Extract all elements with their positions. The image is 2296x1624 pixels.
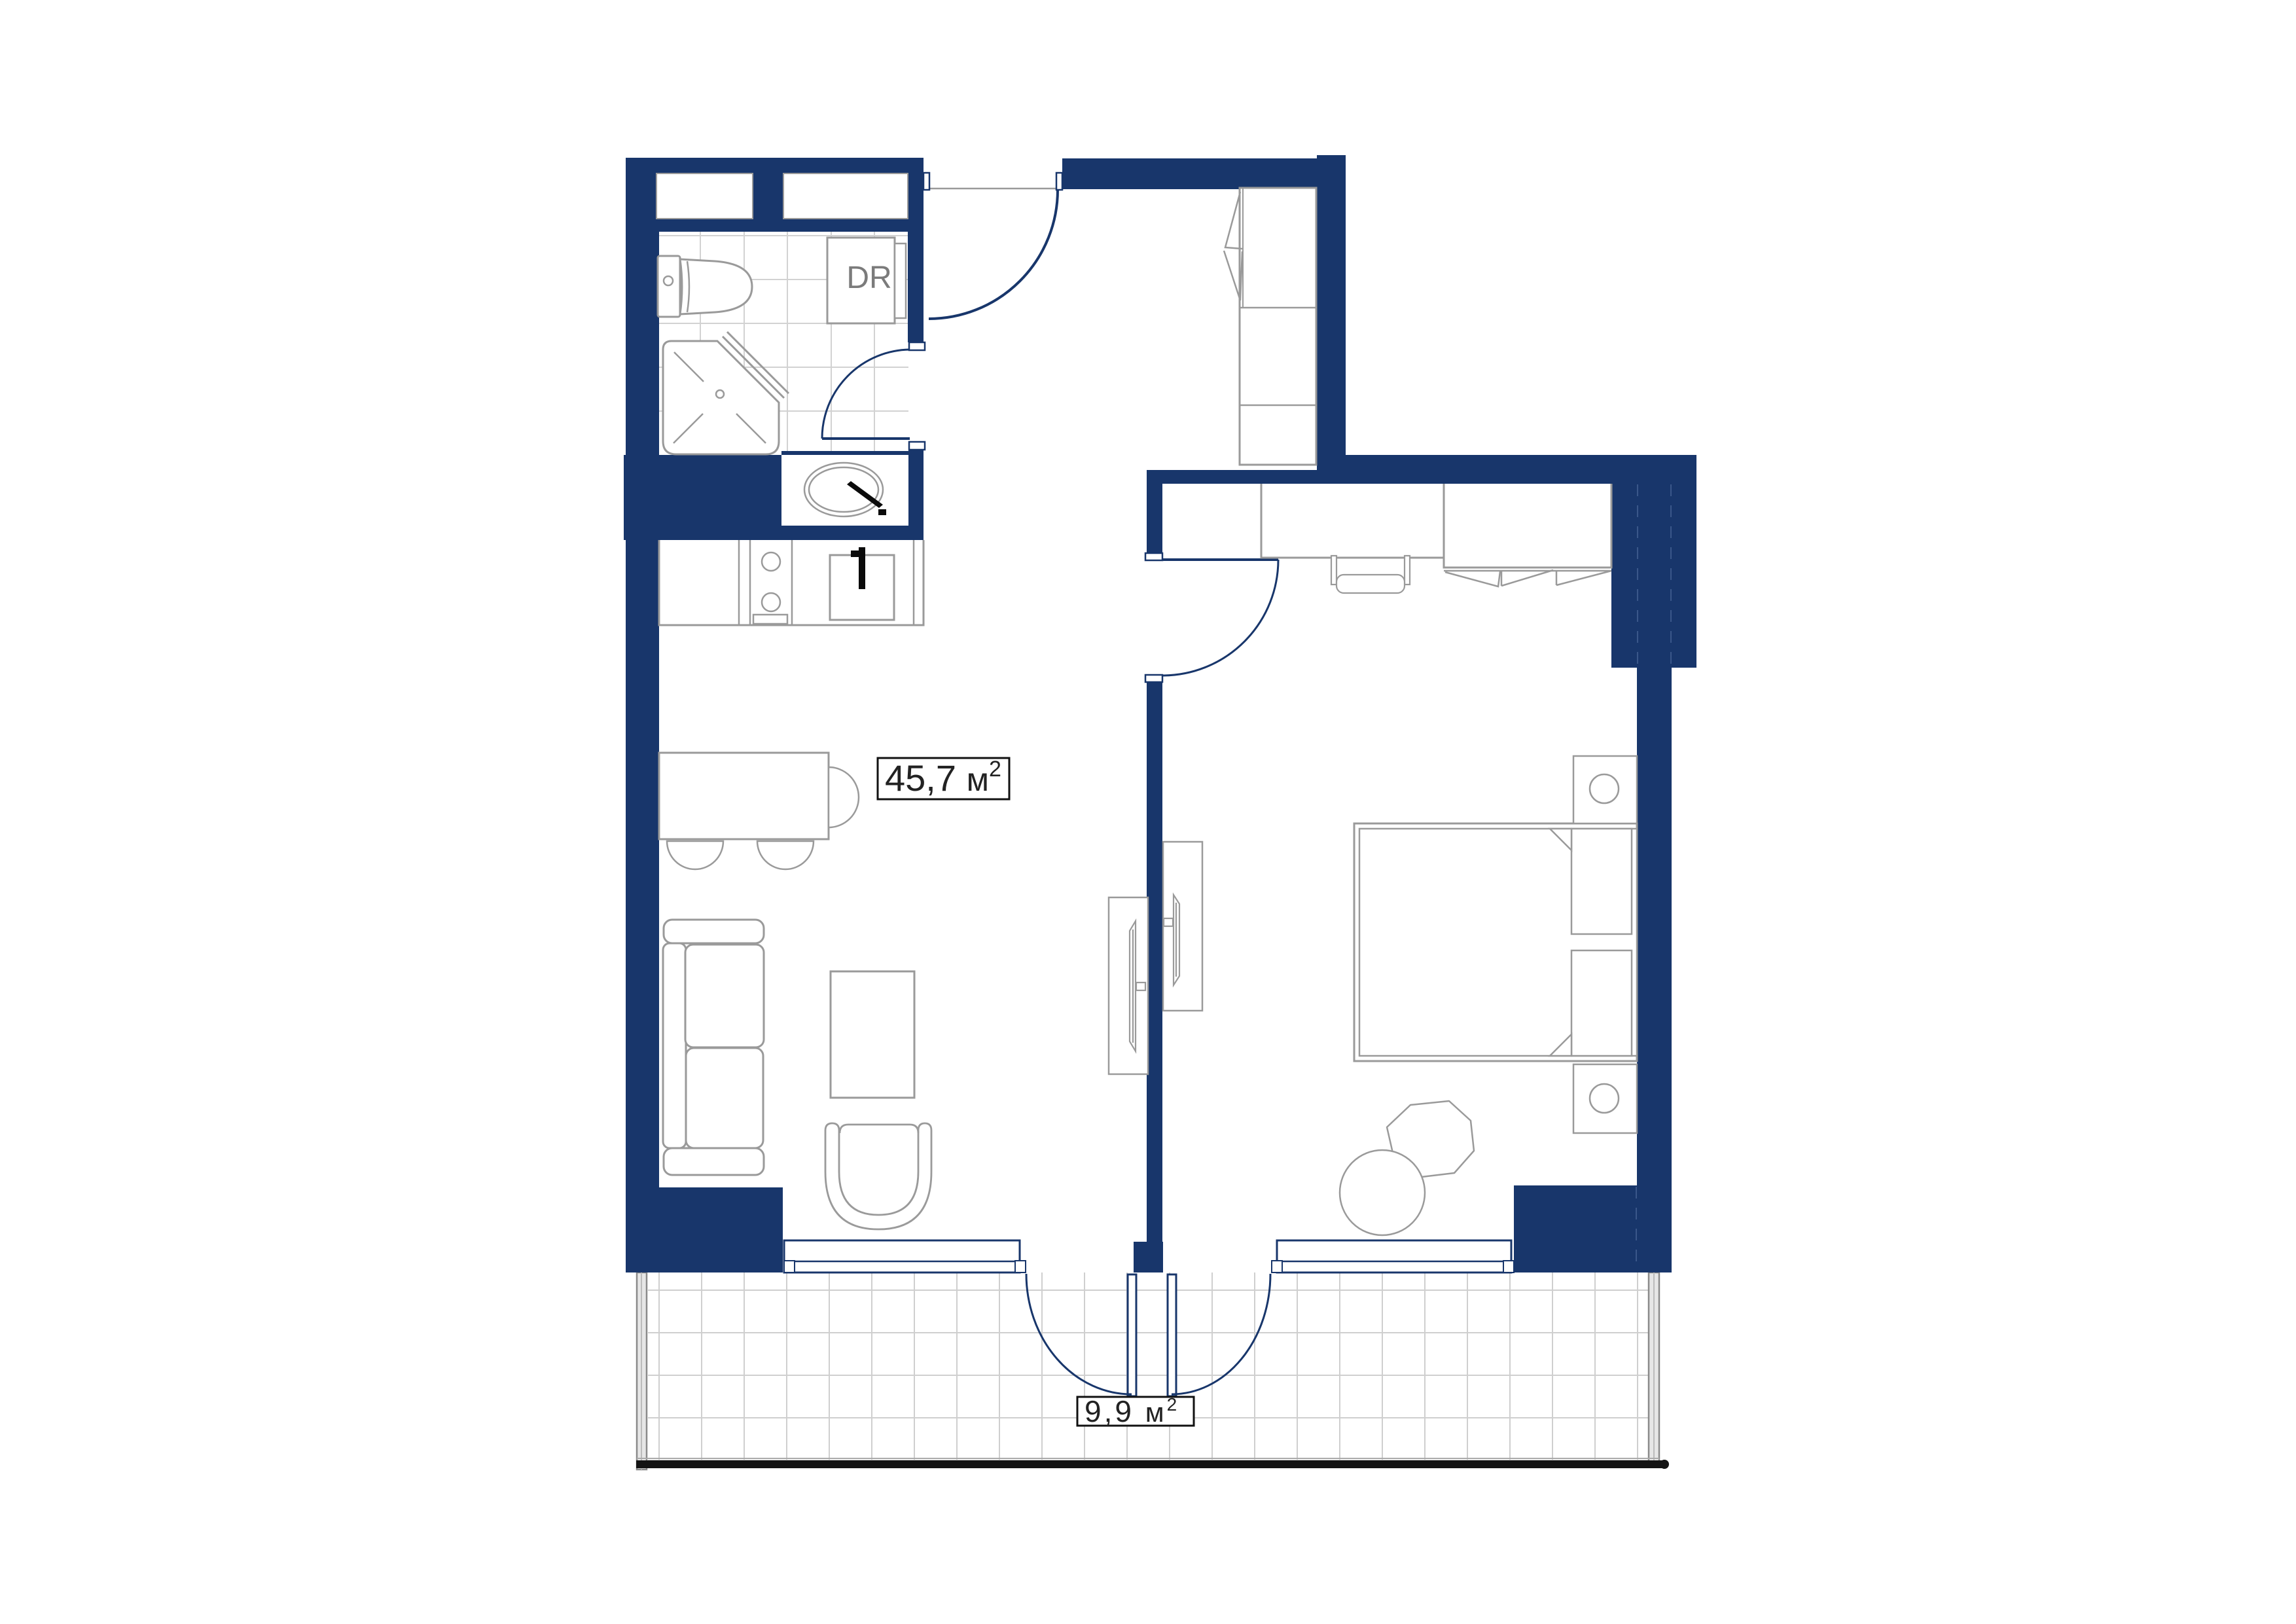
svg-text:9,9 м2: 9,9 м2: [1085, 1394, 1179, 1428]
svg-text:45,7 м2: 45,7 м2: [885, 757, 1001, 799]
svg-text:DR: DR: [846, 261, 891, 295]
